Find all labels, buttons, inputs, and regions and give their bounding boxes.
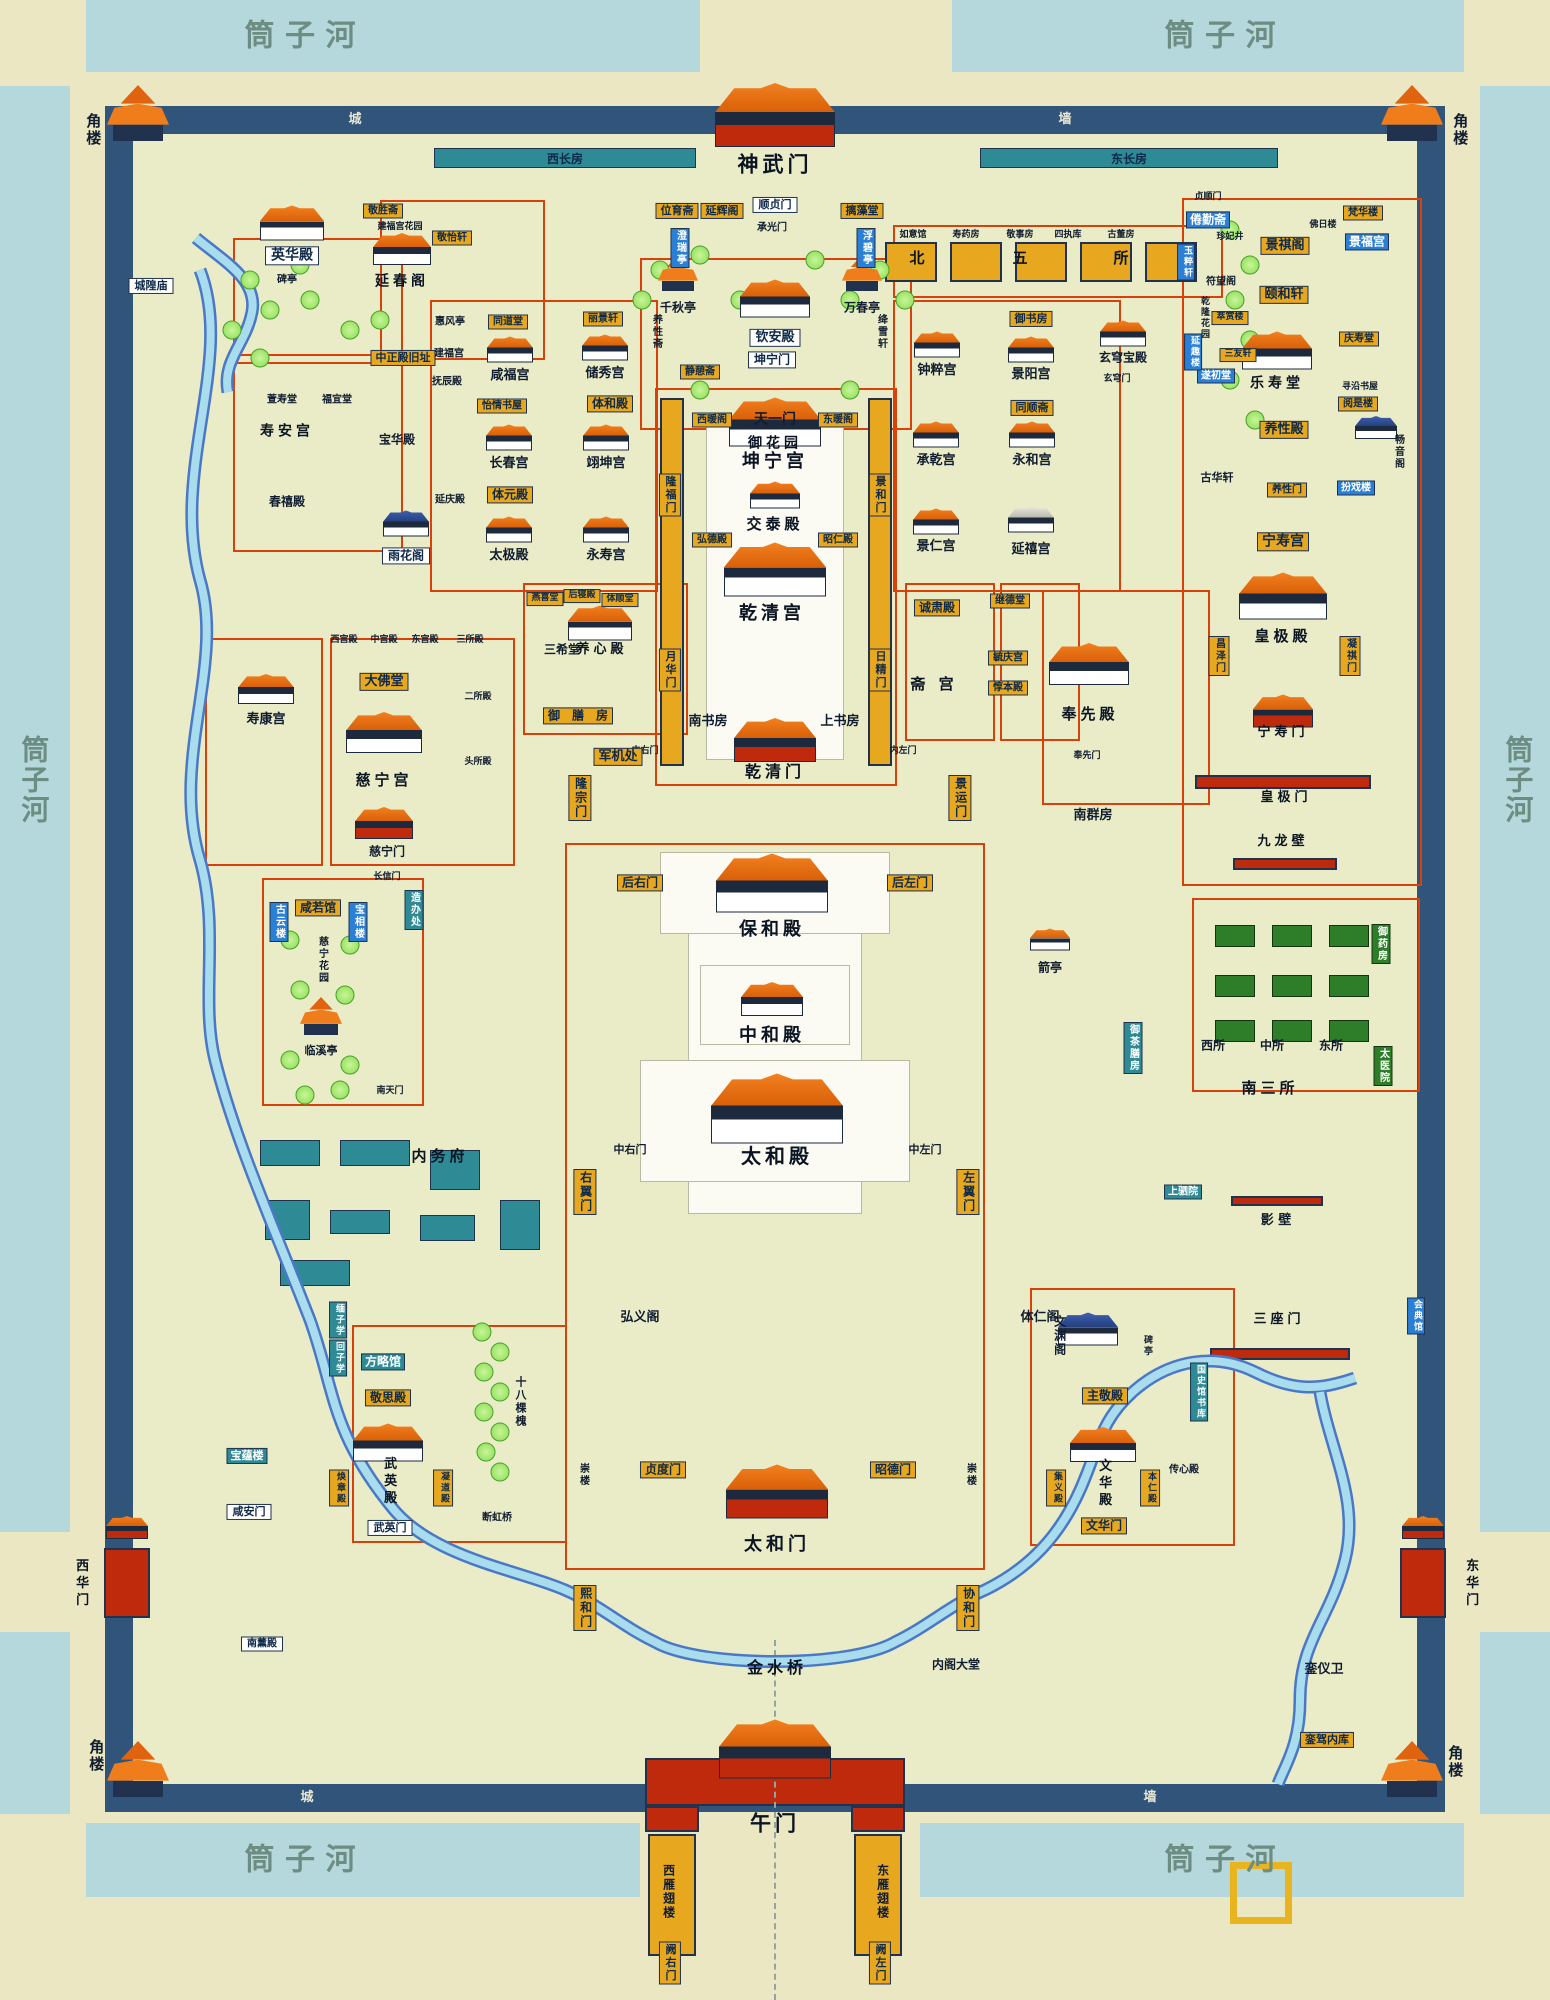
tree-icon bbox=[241, 271, 260, 290]
yikungong bbox=[583, 425, 629, 452]
map-label: 延春阁 bbox=[375, 274, 429, 289]
corner-tower-nw bbox=[107, 85, 169, 147]
xianfugong bbox=[487, 337, 533, 364]
tree-icon bbox=[475, 1363, 494, 1382]
pavilion-icon bbox=[300, 997, 342, 1039]
map-label: 梵华楼 bbox=[1343, 206, 1383, 221]
map-label: 钟粹宫 bbox=[917, 364, 956, 378]
tree-icon bbox=[341, 321, 360, 340]
map-label: 萱寿堂 bbox=[267, 395, 297, 406]
tree-icon bbox=[251, 349, 270, 368]
tree-icon bbox=[371, 311, 390, 330]
moat-label: 筒 子 河 bbox=[245, 20, 356, 53]
taihedian-label: 太和殿 bbox=[741, 1145, 813, 1167]
map-label: 影 壁 bbox=[1261, 1214, 1292, 1228]
map-label: 碑亭 bbox=[1141, 1335, 1151, 1357]
tree-icon bbox=[281, 1051, 300, 1070]
map-label: 玉粹轩 bbox=[1177, 244, 1195, 281]
map-label: 后右门 bbox=[617, 874, 663, 891]
map-label: 萃赏楼 bbox=[1211, 311, 1248, 325]
map-label: 阙右门 bbox=[659, 1942, 681, 1985]
map-label: 銮驾内库 bbox=[1300, 1732, 1354, 1748]
map-label: 宝蕴楼 bbox=[227, 1448, 268, 1464]
map-label: 三所殿 bbox=[456, 636, 483, 646]
yanxigong bbox=[1008, 507, 1054, 534]
map-label: 弘义阁 bbox=[620, 1311, 659, 1325]
map-label: 城 bbox=[348, 113, 361, 127]
tree-icon bbox=[491, 1423, 510, 1442]
chengqiangong bbox=[913, 422, 959, 449]
jingyanggong bbox=[1008, 337, 1054, 364]
map-label: 咸安门 bbox=[227, 1504, 272, 1520]
map-label: 宝相楼 bbox=[349, 902, 368, 942]
tree-icon bbox=[296, 1086, 315, 1105]
map-label: 西所 bbox=[1201, 1039, 1225, 1052]
map-label: 雨花阁 bbox=[382, 547, 430, 564]
neiwufu-label: 内务府 bbox=[411, 1148, 468, 1165]
map-label: 文华殿 bbox=[1096, 1459, 1110, 1510]
tree-icon bbox=[301, 291, 320, 310]
map-label: 绛雪轩 bbox=[876, 314, 887, 350]
map-label: 十八棵槐 bbox=[514, 1376, 526, 1428]
yangxindian bbox=[568, 606, 632, 643]
map-label: 储秀宫 bbox=[585, 367, 624, 381]
map-label: 斋 宫 bbox=[910, 676, 957, 693]
map-label: 延庆殿 bbox=[435, 495, 465, 506]
map-label: 敬胜斋 bbox=[363, 204, 403, 219]
map-label: 昭德门 bbox=[870, 1461, 916, 1478]
wumen-gate bbox=[719, 1720, 831, 1785]
map-label: 同道堂 bbox=[488, 315, 528, 330]
map-label: 畅音阁 bbox=[1393, 434, 1404, 470]
kunninggong-label: 坤宁宫 bbox=[742, 452, 808, 472]
corner-tower-label: 角楼 bbox=[1447, 1745, 1464, 1779]
map-label: 内阁大堂 bbox=[932, 1658, 980, 1671]
map-label: 主敬殿 bbox=[1082, 1387, 1128, 1404]
map-label: 宝华殿 bbox=[379, 433, 415, 446]
map-label: 静憩斋 bbox=[680, 365, 720, 380]
map-label: 御药房 bbox=[1372, 924, 1391, 964]
map-label: 景和门 bbox=[869, 474, 891, 517]
map-label: 符望阁 bbox=[1206, 277, 1236, 288]
map-label: 弘德殿 bbox=[692, 533, 732, 548]
chuxiugong bbox=[582, 335, 628, 362]
map-label: 御花园 bbox=[748, 436, 802, 451]
map-label: 御书房 bbox=[1010, 311, 1053, 327]
yinghuadian bbox=[260, 206, 324, 243]
map-label: 中正殿旧址 bbox=[371, 350, 436, 366]
map-label: 墙 bbox=[1143, 1791, 1156, 1805]
map-label: 九龙壁 bbox=[1257, 835, 1308, 849]
map-label: 敬事房 bbox=[1006, 231, 1033, 241]
moat-label: 筒子河 bbox=[1502, 735, 1533, 825]
map-label: 天一门 bbox=[754, 412, 796, 427]
map-label: 后左门 bbox=[887, 874, 933, 891]
corner-tower-sw bbox=[107, 1741, 169, 1803]
tree-icon bbox=[477, 1443, 496, 1462]
map-label: 熙和门 bbox=[573, 1585, 596, 1631]
donghuamen-gate bbox=[1402, 1516, 1444, 1540]
cininggong bbox=[346, 712, 422, 756]
map-label: 临溪亭 bbox=[305, 1045, 338, 1057]
map-label: 寿药房 bbox=[952, 231, 979, 241]
map-label: 文华门 bbox=[1081, 1517, 1127, 1534]
map-label: 协和门 bbox=[956, 1585, 979, 1631]
map-label: 景祺阁 bbox=[1260, 237, 1309, 255]
qianqingmen bbox=[734, 718, 816, 766]
map-label: 东暖阁 bbox=[818, 413, 858, 428]
map-label: 位育斋 bbox=[656, 203, 699, 219]
map-label: 古华轩 bbox=[1201, 472, 1234, 484]
map-label: 遂初堂 bbox=[1197, 369, 1235, 384]
map-label: 慈宁花园 bbox=[317, 936, 328, 984]
baohedian bbox=[716, 854, 828, 919]
map-label: 珍妃井 bbox=[1216, 233, 1243, 243]
tree-icon bbox=[331, 1081, 350, 1100]
map-label: 太医院 bbox=[1374, 1046, 1393, 1086]
huangjidian-label: 皇极殿 bbox=[1254, 628, 1311, 645]
corner-tower-label: 角楼 bbox=[88, 1739, 105, 1773]
map-label: 文渊阁 bbox=[1052, 1315, 1065, 1357]
forbidden-city-map: 西长房东长房筒 子 河筒 子 河筒子河筒子河筒 子 河筒 子 河城墙城墙角楼角楼… bbox=[0, 0, 1550, 2000]
map-label: 千秋亭 bbox=[660, 301, 696, 314]
map-label: 玄穹门 bbox=[1103, 375, 1130, 385]
yongshougong bbox=[583, 517, 629, 544]
map-label: 南群房 bbox=[1073, 809, 1112, 823]
map-label: 毓庆宫 bbox=[988, 651, 1028, 666]
map-label: 长春宫 bbox=[489, 457, 528, 471]
map-label: 延禧宫 bbox=[1011, 543, 1050, 557]
map-label: 左翼门 bbox=[956, 1169, 979, 1215]
map-label: 国史馆书库 bbox=[1190, 1363, 1208, 1422]
map-label: 凝祺门 bbox=[1340, 636, 1361, 676]
map-label: 月华门 bbox=[659, 649, 681, 692]
map-label: 佛日楼 bbox=[1309, 221, 1336, 231]
map-label: 如意馆 bbox=[899, 231, 926, 241]
map-label: 同顺斋 bbox=[1011, 400, 1054, 416]
map-label: 本仁殿 bbox=[1140, 1470, 1160, 1507]
map-label: 中右门 bbox=[614, 1144, 647, 1156]
map-label: 敬怡轩 bbox=[432, 231, 472, 246]
map-label: 福宜堂 bbox=[322, 395, 352, 406]
ciningmen bbox=[355, 807, 413, 841]
nansansuo-label: 南三所 bbox=[1241, 1080, 1298, 1097]
map-label: 贞度门 bbox=[640, 1461, 686, 1478]
map-label: 东所 bbox=[1319, 1039, 1343, 1052]
map-label: 会典馆 bbox=[1407, 1298, 1425, 1335]
taihedian bbox=[711, 1074, 843, 1151]
yanchunge bbox=[373, 233, 431, 267]
moat-label: 筒 子 河 bbox=[1165, 20, 1276, 53]
jianting bbox=[1030, 929, 1070, 952]
map-label: 上驷院 bbox=[1164, 1185, 1202, 1200]
map-label: 四执库 bbox=[1054, 231, 1081, 241]
map-label: 咸若馆 bbox=[295, 899, 341, 916]
map-label: 体顺堂 bbox=[601, 593, 638, 607]
map-label: 慈宁门 bbox=[369, 845, 405, 858]
map-label: 顺贞门 bbox=[753, 197, 798, 213]
map-label: 承光门 bbox=[757, 223, 787, 234]
map-label: 三希堂 bbox=[544, 643, 580, 656]
map-label: 养心殿 bbox=[576, 643, 627, 657]
corner-tower-se bbox=[1381, 1741, 1443, 1803]
map-label: 坤宁门 bbox=[748, 351, 796, 368]
map-label: 景仁宫 bbox=[916, 540, 955, 554]
map-label: 军机处 bbox=[593, 748, 642, 766]
yonghegong bbox=[1009, 422, 1055, 449]
fengxiandian-label: 奉先殿 bbox=[1061, 706, 1118, 723]
tree-icon bbox=[261, 301, 280, 320]
taijidian bbox=[486, 517, 532, 544]
map-label: 箭亭 bbox=[1038, 961, 1062, 974]
map-label: 銮仪卫 bbox=[1304, 1663, 1343, 1677]
map-label: 传心殿 bbox=[1169, 1465, 1199, 1476]
map-label: 崇楼 bbox=[578, 1463, 589, 1487]
qinandian bbox=[740, 280, 810, 321]
jinshuiqiao-label: 金水桥 bbox=[747, 1659, 807, 1677]
map-label: 永寿宫 bbox=[586, 549, 625, 563]
yuhuage bbox=[383, 511, 429, 538]
map-label: 碑亭 bbox=[277, 275, 297, 286]
map-label: 春禧殿 bbox=[269, 495, 305, 508]
tree-icon bbox=[1241, 256, 1260, 275]
map-label: 集义殿 bbox=[1046, 1470, 1066, 1507]
wenyuange bbox=[1058, 1313, 1118, 1348]
tree-icon bbox=[491, 1383, 510, 1402]
map-label: 翊坤宫 bbox=[586, 457, 625, 471]
tree-icon bbox=[806, 251, 825, 270]
taihemen bbox=[726, 1465, 828, 1524]
shenwumen-gate bbox=[715, 83, 835, 153]
map-label: 西暖阁 bbox=[692, 413, 732, 428]
corner-tower-label: 角楼 bbox=[1452, 113, 1469, 147]
map-label: 诚肃殿 bbox=[914, 599, 960, 616]
map-label: 中宫殿 bbox=[370, 636, 397, 646]
map-label: 体元殿 bbox=[487, 486, 533, 503]
changyinge bbox=[1355, 416, 1397, 440]
leshoutang-label: 乐寿堂 bbox=[1250, 376, 1304, 391]
map-label: 御茶膳房 bbox=[1124, 1022, 1143, 1074]
fengxiandian bbox=[1049, 643, 1129, 689]
map-label: 五 bbox=[1012, 250, 1031, 267]
map-label: 永和宫 bbox=[1012, 454, 1051, 468]
changchungong bbox=[486, 425, 532, 452]
map-label: 三友轩 bbox=[1219, 348, 1256, 362]
map-label: 昌泽门 bbox=[1209, 636, 1230, 676]
map-label: 景运门 bbox=[948, 775, 971, 821]
map-label: 西雁翅楼 bbox=[661, 1864, 674, 1920]
map-label: 养性斋 bbox=[651, 314, 662, 350]
huangjidian bbox=[1239, 573, 1327, 624]
map-label: 古云楼 bbox=[270, 902, 289, 942]
map-label: 三座门 bbox=[1253, 1313, 1304, 1327]
tree-icon bbox=[1226, 291, 1245, 310]
tree-icon bbox=[841, 381, 860, 400]
map-label: 敬思殿 bbox=[365, 1389, 411, 1406]
map-label: 景阳宫 bbox=[1011, 368, 1050, 382]
map-label: 阅是楼 bbox=[1338, 397, 1378, 412]
shenwumen-label: 神武门 bbox=[738, 153, 813, 176]
map-label: 东宫殿 bbox=[411, 636, 438, 646]
tree-icon bbox=[491, 1343, 510, 1362]
ningshougong-label: 宁寿宫 bbox=[1257, 532, 1309, 551]
map-label: 抚辰殿 bbox=[432, 377, 462, 388]
map-label: 方略馆 bbox=[361, 1353, 405, 1370]
map-label: 承乾宫 bbox=[916, 454, 955, 468]
tree-icon bbox=[691, 381, 710, 400]
tree-icon bbox=[633, 291, 652, 310]
map-label: 断虹桥 bbox=[482, 1513, 512, 1524]
map-label: 内左门 bbox=[889, 747, 916, 757]
map-label: 中所 bbox=[1260, 1039, 1284, 1052]
tree-icon bbox=[223, 321, 242, 340]
map-label: 南天门 bbox=[376, 1087, 403, 1097]
map-label: 所 bbox=[1113, 250, 1132, 267]
map-label: 惇本殿 bbox=[988, 681, 1028, 696]
map-label: 凝道殿 bbox=[433, 1470, 453, 1507]
taihemen-label: 太和门 bbox=[744, 1535, 810, 1555]
map-label: 城隍庙 bbox=[129, 278, 174, 294]
map-label: 阙左门 bbox=[869, 1942, 891, 1985]
map-label: 钦安殿 bbox=[749, 329, 800, 347]
map-label: 景福宫 bbox=[1345, 233, 1389, 250]
map-label: 建福宫 bbox=[434, 349, 464, 360]
map-label: 右翼门 bbox=[573, 1169, 596, 1215]
map-label: 日精门 bbox=[869, 649, 891, 692]
xuanqiongbaodian bbox=[1100, 321, 1146, 348]
map-label: 交泰殿 bbox=[746, 516, 803, 533]
tree-icon bbox=[491, 1463, 510, 1482]
jiaotaidian bbox=[750, 482, 800, 511]
map-label: 延趣楼 bbox=[1184, 334, 1202, 371]
map-label: 寿康宫 bbox=[246, 713, 285, 727]
map-label: 奉先门 bbox=[1073, 752, 1100, 762]
xihuamen-label: 西华门 bbox=[73, 1559, 87, 1610]
map-label: 御 膳 房 bbox=[543, 707, 613, 724]
map-label: 中左门 bbox=[909, 1144, 942, 1156]
map-label: 南薰殿 bbox=[241, 1637, 283, 1652]
map-label: 隆宗门 bbox=[568, 775, 591, 821]
map-label: 宁寿门 bbox=[1257, 726, 1308, 740]
map-label: 造办处 bbox=[405, 890, 424, 930]
map-label: 怡情书屋 bbox=[477, 399, 527, 414]
map-label: 寻沿书屋 bbox=[1342, 383, 1378, 393]
zhongcuigong bbox=[914, 332, 960, 359]
qianqinggong-label: 乾清宫 bbox=[739, 604, 805, 624]
qianqinggong bbox=[724, 543, 826, 602]
map-label: 玄穹宝殿 bbox=[1099, 351, 1147, 364]
map-label: 昭仁殿 bbox=[818, 533, 858, 548]
corner-tower-ne bbox=[1381, 85, 1443, 147]
map-label: 丽景轩 bbox=[583, 312, 623, 327]
map-label: 头所殿 bbox=[464, 758, 491, 768]
map-label: 崇楼 bbox=[965, 1463, 976, 1487]
zhonghedian bbox=[741, 982, 803, 1018]
zhonghedian-label: 中和殿 bbox=[739, 1026, 805, 1046]
cininggong-label: 慈宁宫 bbox=[355, 772, 412, 789]
map-label: 武英门 bbox=[368, 1520, 413, 1536]
map-label: 二所殿 bbox=[464, 693, 491, 703]
map-label: 墙 bbox=[1058, 113, 1071, 127]
map-label: 隆福门 bbox=[659, 474, 681, 517]
map-label: 后寝殿 bbox=[563, 589, 600, 603]
moat-label: 筒 子 河 bbox=[1165, 1844, 1276, 1877]
map-label: 万春亭 bbox=[844, 301, 880, 314]
map-label: 扮戏楼 bbox=[1337, 481, 1375, 496]
map-label: 庆寿堂 bbox=[1339, 332, 1379, 347]
map-label: 古董房 bbox=[1107, 231, 1134, 241]
map-label: 澄瑞亭 bbox=[671, 228, 690, 268]
map-label: 城 bbox=[300, 1791, 313, 1805]
moat-label: 筒子河 bbox=[18, 735, 49, 825]
map-label: 西宫殿 bbox=[330, 636, 357, 646]
xihuamen-gate bbox=[106, 1516, 148, 1540]
tree-icon bbox=[341, 1056, 360, 1075]
map-label: 燕喜堂 bbox=[526, 592, 563, 606]
map-label: 上书房 bbox=[820, 715, 859, 729]
donghuamen-label: 东华门 bbox=[1463, 1559, 1477, 1610]
map-label: 焕章殿 bbox=[329, 1470, 349, 1507]
shoukanggong bbox=[238, 674, 294, 706]
map-label: 寿安宫 bbox=[260, 424, 314, 439]
map-label: 东雁翅楼 bbox=[875, 1864, 888, 1920]
baohedian-label: 保和殿 bbox=[739, 920, 805, 940]
map-label: 颐和轩 bbox=[1259, 286, 1308, 304]
map-label: 摛藻堂 bbox=[841, 203, 884, 219]
jingrengong bbox=[913, 509, 959, 536]
map-label: 贞顺门 bbox=[1194, 193, 1221, 203]
tree-icon bbox=[473, 1323, 492, 1342]
wumen-label: 午门 bbox=[750, 1812, 800, 1835]
map-label: 咸福宫 bbox=[490, 369, 529, 383]
map-label: 皇极门 bbox=[1260, 791, 1311, 805]
map-label: 继德堂 bbox=[990, 594, 1030, 609]
map-label: 建福宫花园 bbox=[377, 223, 422, 233]
map-label: 养性门 bbox=[1267, 483, 1307, 498]
map-label: 北 bbox=[909, 250, 928, 267]
tree-icon bbox=[475, 1403, 494, 1422]
map-label: 大佛堂 bbox=[359, 673, 408, 691]
map-label: 延辉阁 bbox=[701, 203, 744, 219]
tree-icon bbox=[896, 291, 915, 310]
map-label: 养性殿 bbox=[1259, 421, 1308, 439]
moat-label: 筒 子 河 bbox=[245, 1844, 356, 1877]
map-label: 长信门 bbox=[373, 873, 400, 883]
map-label: 太极殿 bbox=[489, 549, 528, 563]
map-label: 武英殿 bbox=[381, 1457, 395, 1508]
map-label: 缅子学 bbox=[329, 1302, 347, 1339]
map-label: 英华殿 bbox=[265, 246, 319, 265]
qianqingmen-label: 乾清门 bbox=[745, 763, 805, 781]
map-label: 倦勤斋 bbox=[1186, 211, 1230, 228]
map-label: 惠风亭 bbox=[435, 317, 465, 328]
map-label: 回子学 bbox=[329, 1340, 347, 1377]
corner-tower-label: 角楼 bbox=[85, 113, 102, 147]
map-label: 浮碧亭 bbox=[857, 228, 876, 268]
map-label: 南书房 bbox=[688, 715, 727, 729]
map-label: 体和殿 bbox=[587, 395, 633, 412]
